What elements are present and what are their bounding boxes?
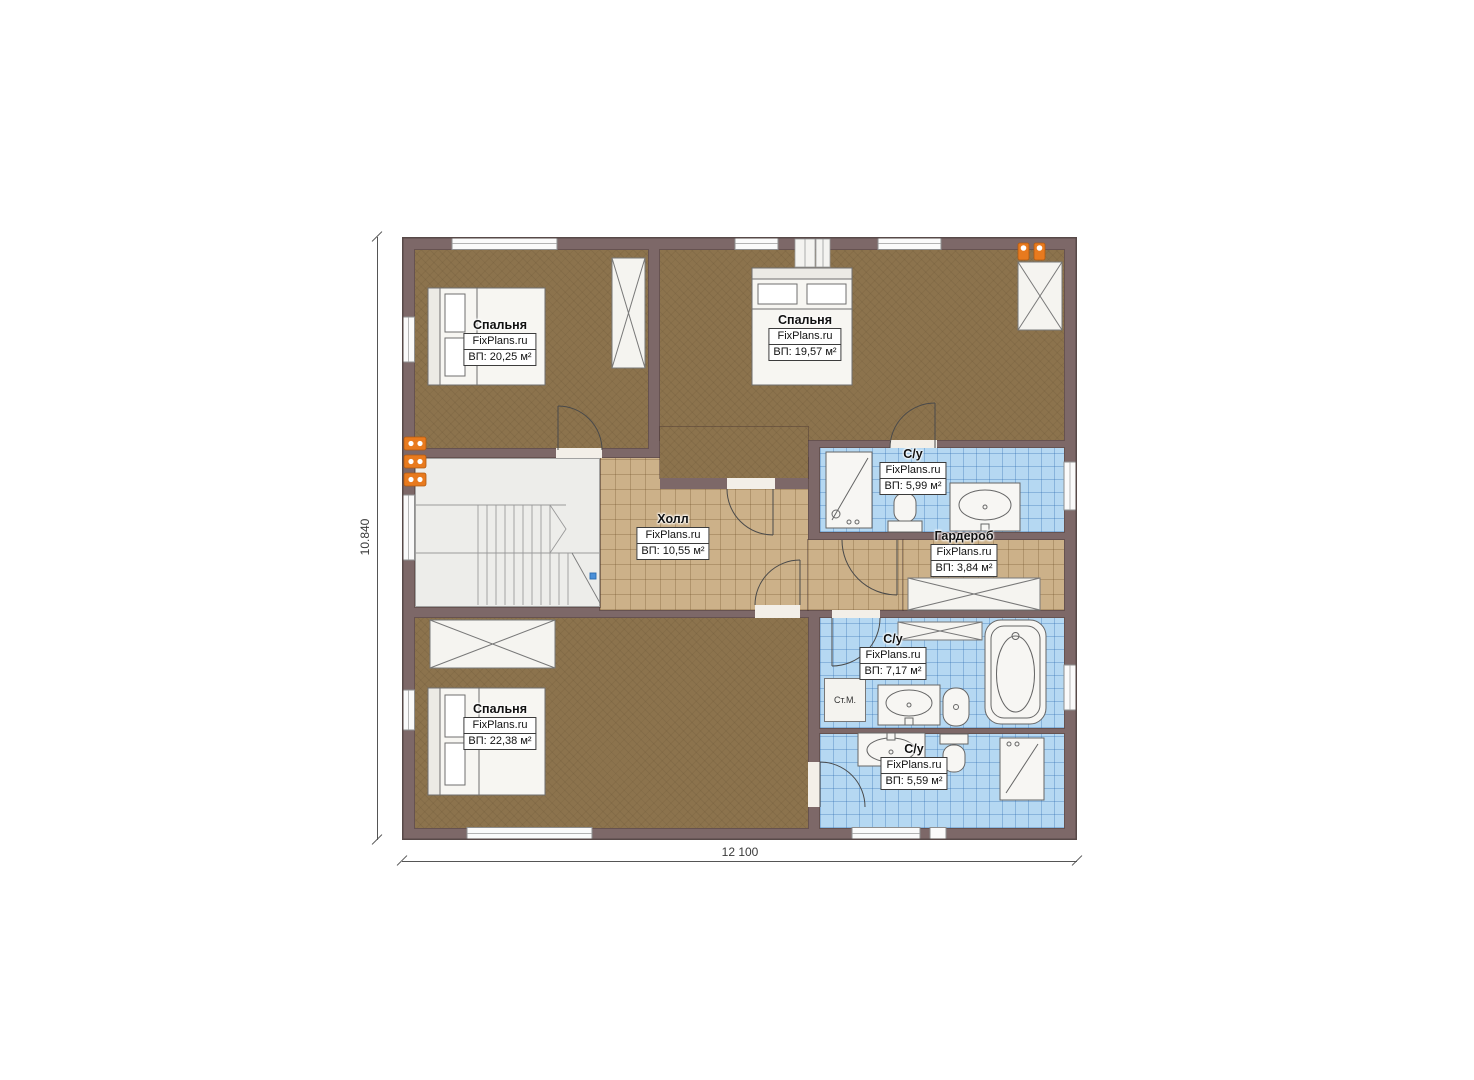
- room-label-bedroom-2: Спальня FixPlans.ru ВП: 19,57 м²: [768, 313, 841, 361]
- room-area: ВП: 3,84 м²: [930, 560, 997, 577]
- room-name: Холл: [636, 512, 709, 526]
- vertical-dimension-label: 10.840: [358, 507, 372, 567]
- stairs-icon: [415, 459, 600, 607]
- room-name: С/у: [859, 632, 926, 646]
- bathtub-icon: [985, 620, 1046, 724]
- room-label-bedroom-3: Спальня FixPlans.ru ВП: 22,38 м²: [463, 702, 536, 750]
- room-name: Гардероб: [930, 529, 997, 543]
- room-brand: FixPlans.ru: [768, 328, 841, 345]
- sink-icon: [878, 685, 940, 725]
- room-brand: FixPlans.ru: [463, 717, 536, 734]
- toilet-icon: [888, 493, 922, 532]
- room-label-wardrobe-room: Гардероб FixPlans.ru ВП: 3,84 м²: [930, 529, 997, 577]
- room-brand: FixPlans.ru: [879, 462, 946, 479]
- room-name: С/у: [879, 447, 946, 461]
- room-label-bathroom-middle: С/у FixPlans.ru ВП: 7,17 м²: [859, 632, 926, 680]
- room-brand: FixPlans.ru: [880, 757, 947, 774]
- room-name: Спальня: [463, 318, 536, 332]
- sink-icon: [950, 483, 1020, 531]
- room-name: Спальня: [768, 313, 841, 327]
- room-label-bathroom-bottom: С/у FixPlans.ru ВП: 5,59 м²: [880, 742, 947, 790]
- room-area: ВП: 22,38 м²: [463, 733, 536, 750]
- room-name: Спальня: [463, 702, 536, 716]
- room-brand: FixPlans.ru: [463, 333, 536, 350]
- room-label-bathroom-top: С/у FixPlans.ru ВП: 5,99 м²: [879, 447, 946, 495]
- vent-duct-icon: [795, 239, 830, 267]
- room-name: С/у: [880, 742, 947, 756]
- shower-icon: [826, 452, 872, 528]
- room-brand: FixPlans.ru: [859, 647, 926, 664]
- room-area: ВП: 5,99 м²: [879, 478, 946, 495]
- room-area: ВП: 7,17 м²: [859, 663, 926, 680]
- room-brand: FixPlans.ru: [636, 527, 709, 544]
- washing-machine: Ст.М.: [824, 678, 866, 722]
- room-brand: FixPlans.ru: [930, 544, 997, 561]
- horizontal-dimension-label: 12 100: [690, 845, 790, 859]
- floor-plan: Ст.М. Спальня FixPlans.ru ВП: 20,25 м² С…: [402, 237, 1077, 840]
- toilet-icon: [943, 688, 969, 726]
- room-area: ВП: 10,55 м²: [636, 543, 709, 560]
- shower-icon: [1000, 738, 1044, 800]
- horizontal-dimension-line: [402, 861, 1077, 862]
- room-area: ВП: 5,59 м²: [880, 773, 947, 790]
- room-area: ВП: 19,57 м²: [768, 344, 841, 361]
- floor-plan-page: Ст.М. Спальня FixPlans.ru ВП: 20,25 м² С…: [0, 0, 1474, 1080]
- room-area: ВП: 20,25 м²: [463, 349, 536, 366]
- room-label-bedroom-1: Спальня FixPlans.ru ВП: 20,25 м²: [463, 318, 536, 366]
- room-label-hall: Холл FixPlans.ru ВП: 10,55 м²: [636, 512, 709, 560]
- vertical-dimension-line: [377, 237, 378, 840]
